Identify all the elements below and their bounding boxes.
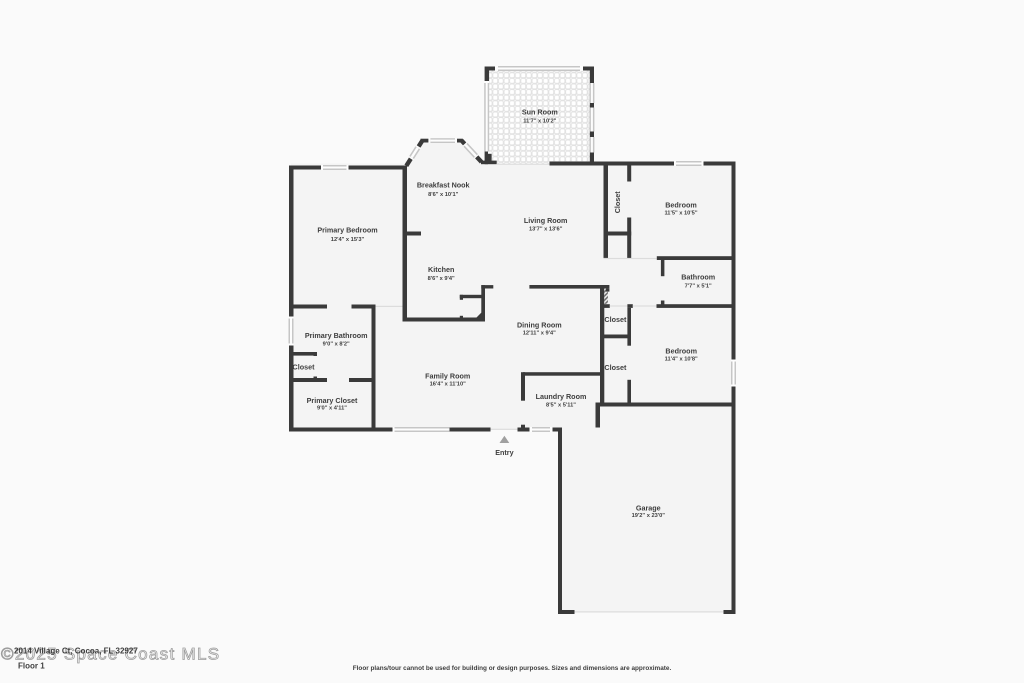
svg-text:12'4" x 15'3": 12'4" x 15'3" (331, 237, 365, 243)
svg-text:Breakfast Nook: Breakfast Nook (417, 181, 470, 190)
svg-text:Closet: Closet (293, 362, 316, 371)
svg-text:Sun Room: Sun Room (522, 108, 558, 117)
svg-text:7'7" x 5'1": 7'7" x 5'1" (685, 283, 712, 289)
svg-text:8'6" x 10'1": 8'6" x 10'1" (428, 192, 459, 198)
svg-text:9'0" x 8'2": 9'0" x 8'2" (323, 341, 350, 347)
svg-text:Closet: Closet (604, 315, 627, 324)
svg-text:Bathroom: Bathroom (681, 273, 715, 282)
svg-text:13'7" x 13'6": 13'7" x 13'6" (529, 227, 563, 233)
svg-text:9'0" x 4'11": 9'0" x 4'11" (317, 406, 347, 412)
svg-text:2014 Village Ct, Cocoa, FL 329: 2014 Village Ct, Cocoa, FL 32927 (14, 647, 138, 656)
svg-text:Floor 1: Floor 1 (18, 662, 45, 671)
svg-text:16'4" x 11'10": 16'4" x 11'10" (430, 381, 467, 387)
svg-text:11'5" x 10'5": 11'5" x 10'5" (664, 211, 697, 217)
svg-text:Bedroom: Bedroom (665, 201, 697, 210)
svg-text:12'11" x 9'4": 12'11" x 9'4" (523, 330, 556, 336)
svg-text:Laundry Room: Laundry Room (536, 392, 587, 401)
svg-text:Living Room: Living Room (524, 216, 568, 225)
svg-text:Kitchen: Kitchen (428, 265, 454, 274)
svg-text:19'2" x 23'0": 19'2" x 23'0" (632, 513, 666, 519)
svg-text:Closet: Closet (604, 363, 627, 372)
svg-text:8'6" x 9'4": 8'6" x 9'4" (428, 276, 455, 282)
svg-text:11'4" x 10'8": 11'4" x 10'8" (665, 356, 698, 362)
svg-text:11'7" x 10'2": 11'7" x 10'2" (523, 119, 556, 125)
svg-text:Floor plans/tour cannot be use: Floor plans/tour cannot be used for buil… (353, 665, 672, 672)
svg-text:Closet: Closet (613, 191, 622, 214)
svg-text:Dining Room: Dining Room (517, 320, 562, 329)
svg-text:Primary Closet: Primary Closet (307, 396, 358, 405)
svg-text:Primary Bedroom: Primary Bedroom (317, 225, 377, 234)
svg-text:Entry: Entry (495, 448, 513, 457)
svg-text:Family Room: Family Room (425, 371, 470, 380)
svg-text:8'5" x 5'11": 8'5" x 5'11" (546, 403, 576, 409)
svg-text:Bedroom: Bedroom (665, 346, 697, 355)
svg-text:Primary Bathroom: Primary Bathroom (305, 331, 368, 340)
svg-text:Garage: Garage (636, 504, 661, 513)
